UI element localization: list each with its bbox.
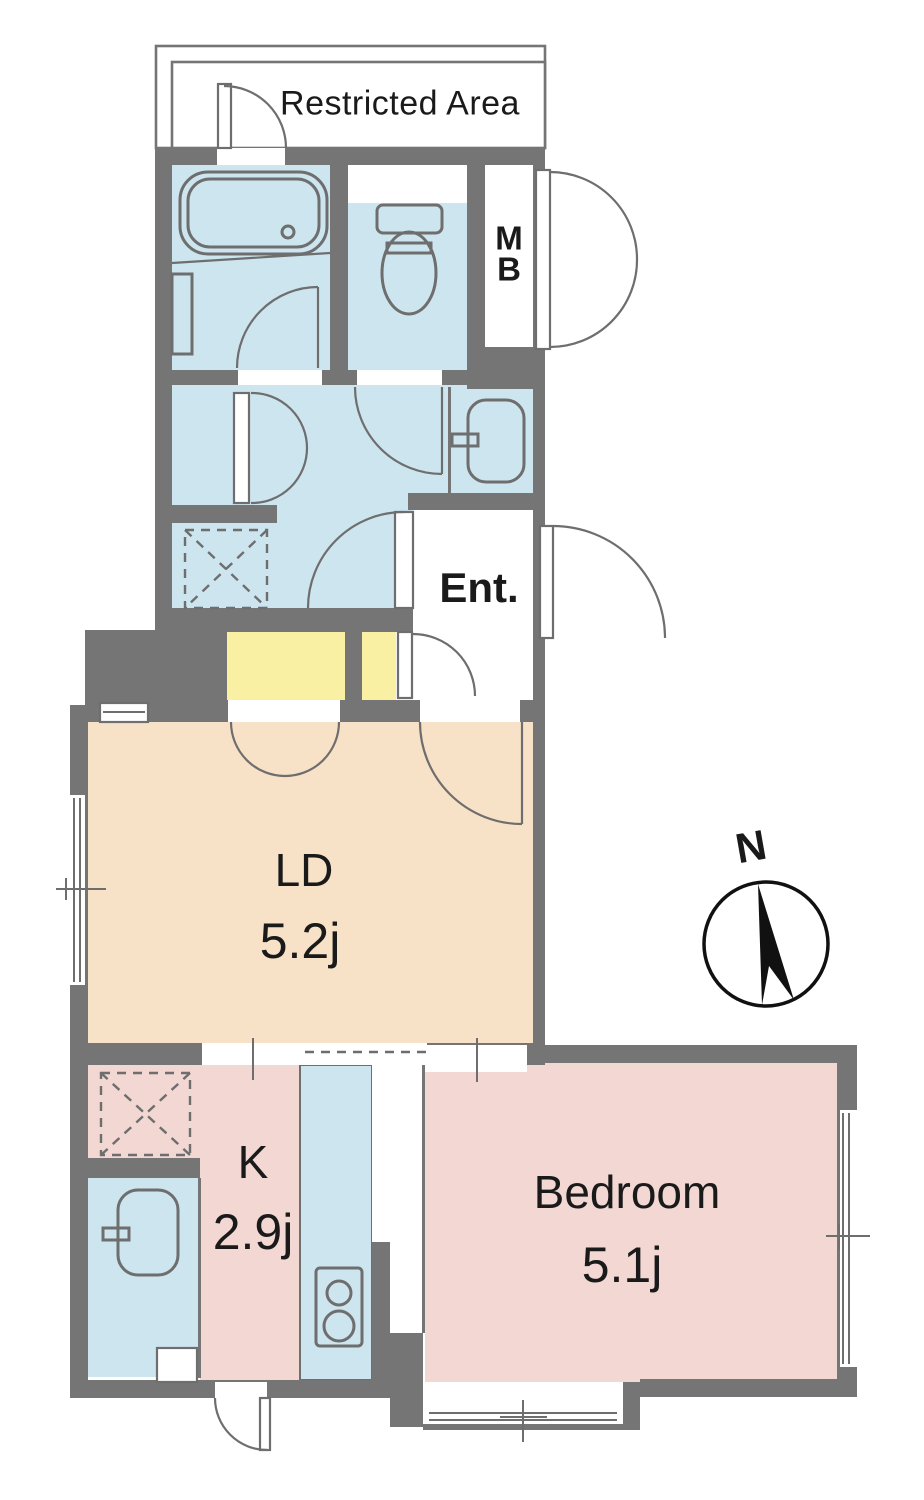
ld-top-vent-window bbox=[100, 703, 148, 722]
service-step bbox=[157, 1348, 197, 1382]
kitchen-service-door bbox=[215, 1398, 270, 1450]
toilet-shelf bbox=[348, 165, 467, 203]
floor-plan-drawing bbox=[0, 0, 924, 1500]
kitchen-label: K bbox=[238, 1135, 269, 1189]
bedroom-label: Bedroom bbox=[534, 1165, 721, 1219]
meter-box-label: M B bbox=[495, 223, 523, 286]
meter-box-double-door bbox=[536, 170, 637, 349]
closet-floor bbox=[227, 632, 345, 700]
bedroom-floor bbox=[425, 1063, 837, 1382]
kitchen-size: 2.9j bbox=[213, 1203, 294, 1261]
meter-box-label-line2: B bbox=[495, 254, 523, 285]
entrance-label: Ent. bbox=[439, 564, 518, 612]
bedroom-size: 5.1j bbox=[582, 1236, 663, 1294]
kitchen-floor bbox=[200, 1158, 300, 1380]
bathroom-floor bbox=[172, 165, 330, 370]
restricted-area-label: Restricted Area bbox=[280, 85, 520, 124]
compass-needle-icon bbox=[758, 884, 794, 1005]
bedroom-bottom-window bbox=[425, 1382, 623, 1442]
living-dining-size: 5.2j bbox=[260, 912, 341, 970]
shoe-closet-floor bbox=[362, 632, 396, 700]
living-dining-label: LD bbox=[275, 843, 334, 897]
meter-box-label-line1: M bbox=[495, 223, 523, 254]
floor-plan: Restricted Area M B Ent. LD 5.2j K 2.9j … bbox=[0, 0, 924, 1500]
front-door bbox=[540, 526, 665, 638]
compass bbox=[704, 882, 828, 1006]
